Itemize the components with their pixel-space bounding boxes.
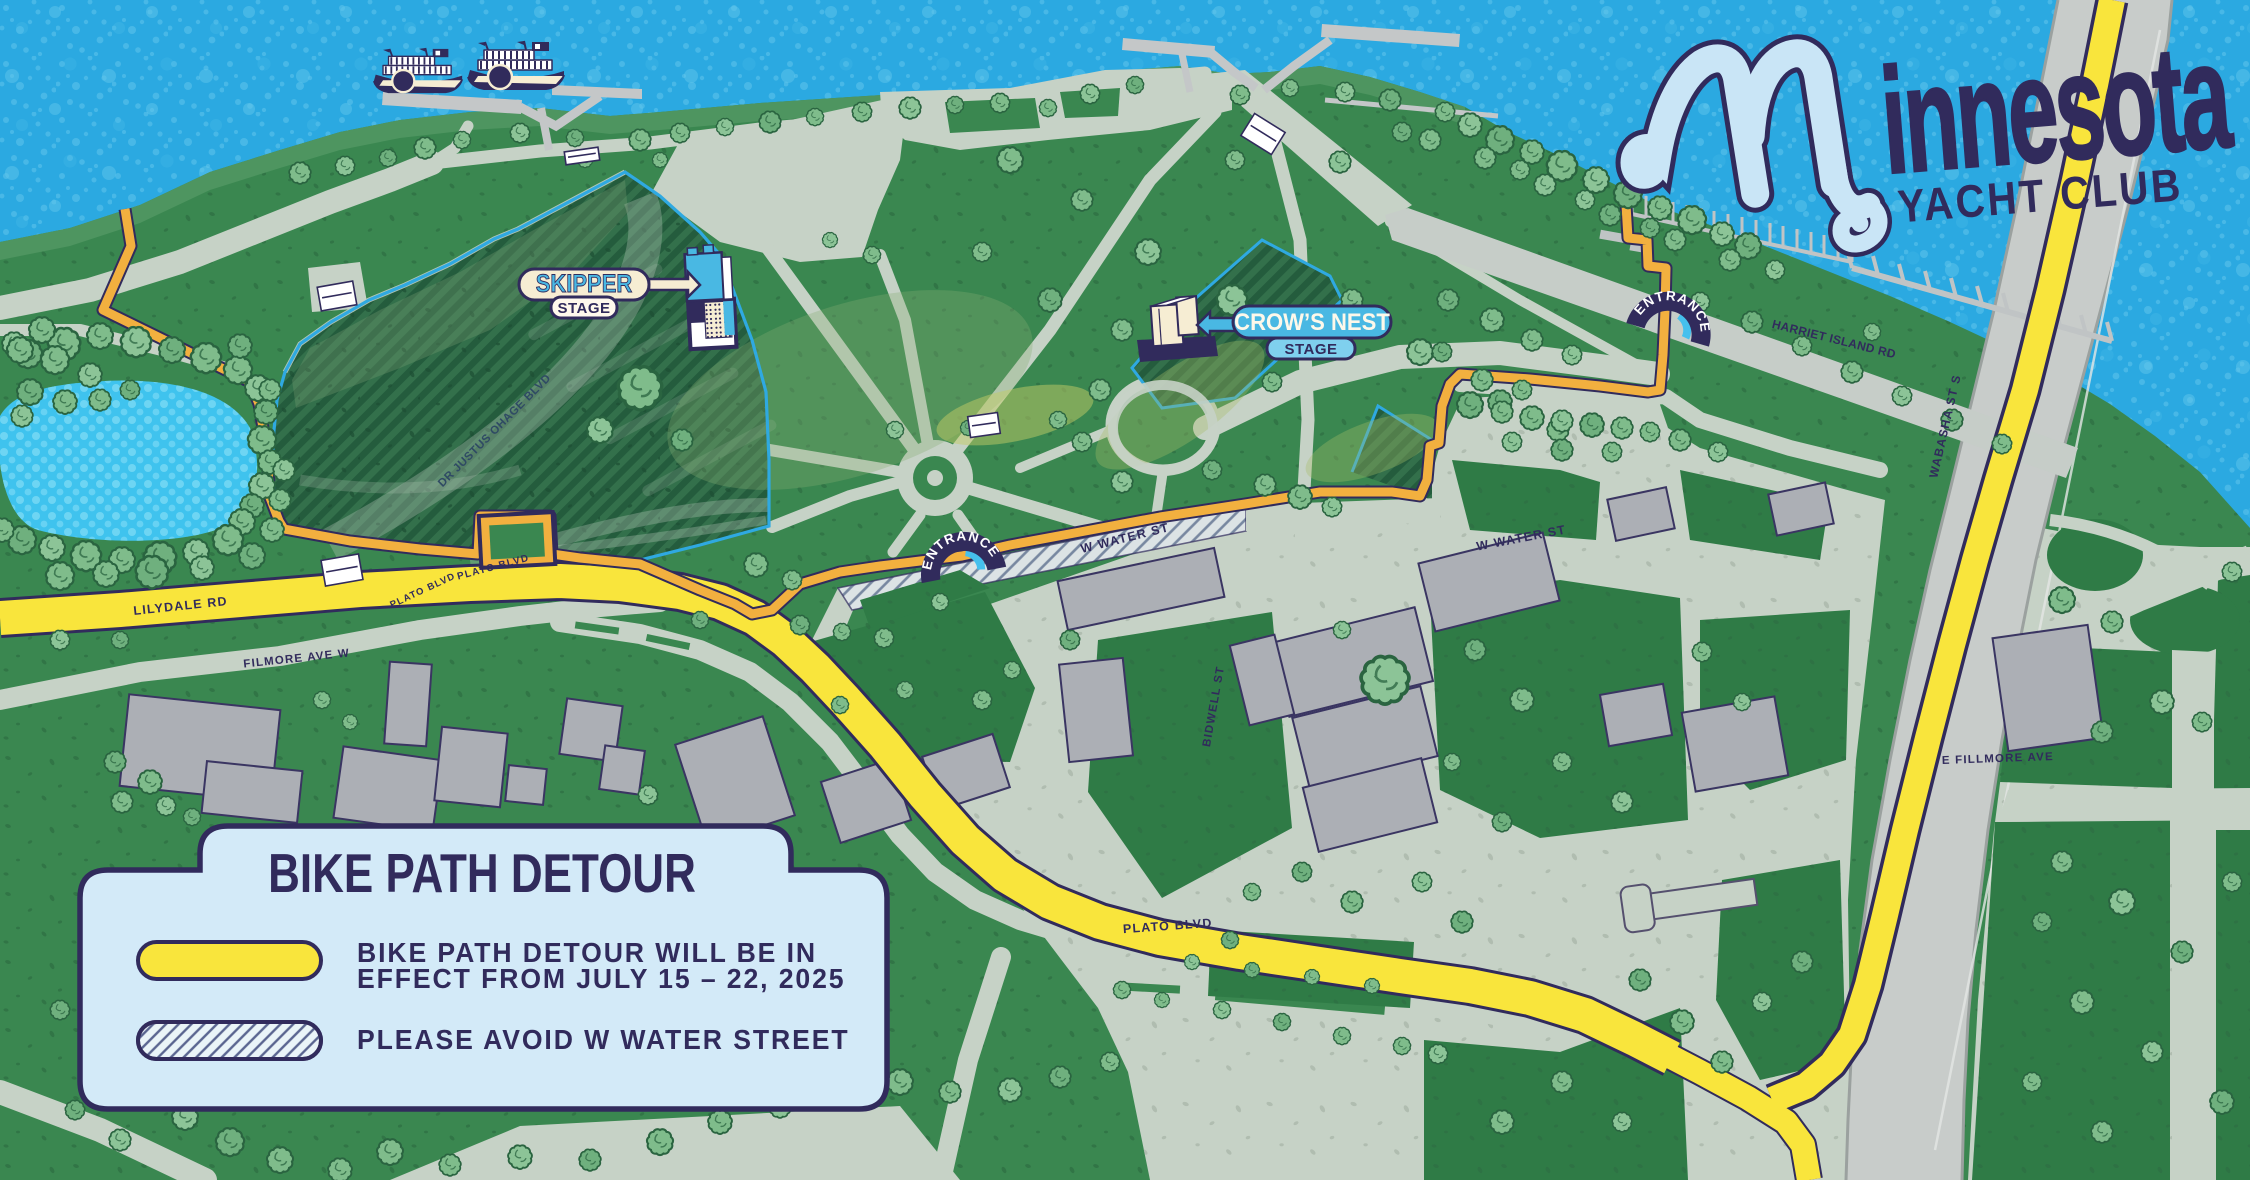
svg-text:STAGE: STAGE bbox=[1284, 341, 1337, 358]
svg-text:CROW’S NEST: CROW’S NEST bbox=[1234, 308, 1390, 335]
svg-text:BIKE PATH DETOUR: BIKE PATH DETOUR bbox=[268, 842, 696, 904]
svg-text:SKIPPER: SKIPPER bbox=[536, 270, 633, 298]
svg-text:EFFECT FROM JULY 15 – 22, 2025: EFFECT FROM JULY 15 – 22, 2025 bbox=[357, 962, 846, 994]
svg-text:PLEASE AVOID W WATER STREET: PLEASE AVOID W WATER STREET bbox=[357, 1023, 849, 1055]
svg-text:STAGE: STAGE bbox=[557, 300, 610, 317]
